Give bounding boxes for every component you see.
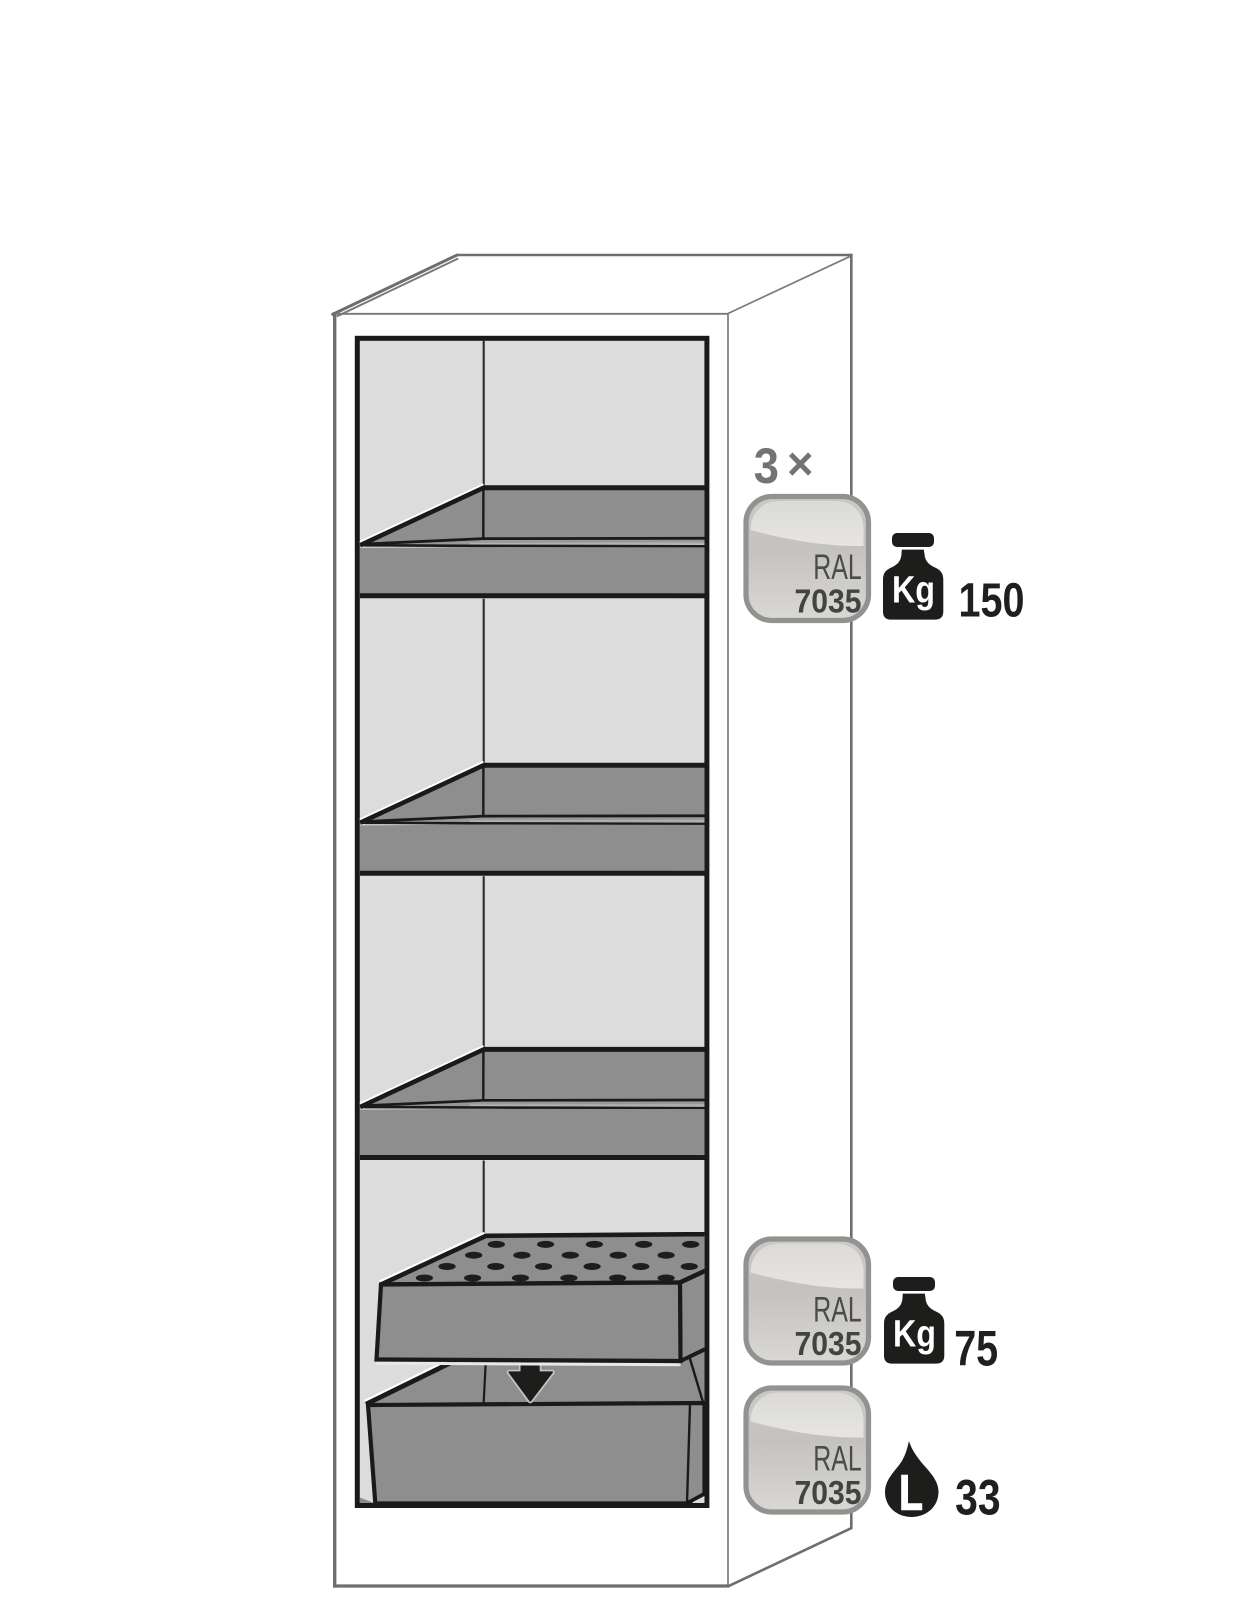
- svg-text:L: L: [899, 1467, 923, 1521]
- svg-text:75: 75: [954, 1321, 998, 1377]
- svg-text:33: 33: [955, 1470, 1001, 1526]
- svg-text:150: 150: [959, 575, 1025, 628]
- svg-text:3: 3: [754, 438, 779, 494]
- svg-text:×: ×: [787, 438, 814, 490]
